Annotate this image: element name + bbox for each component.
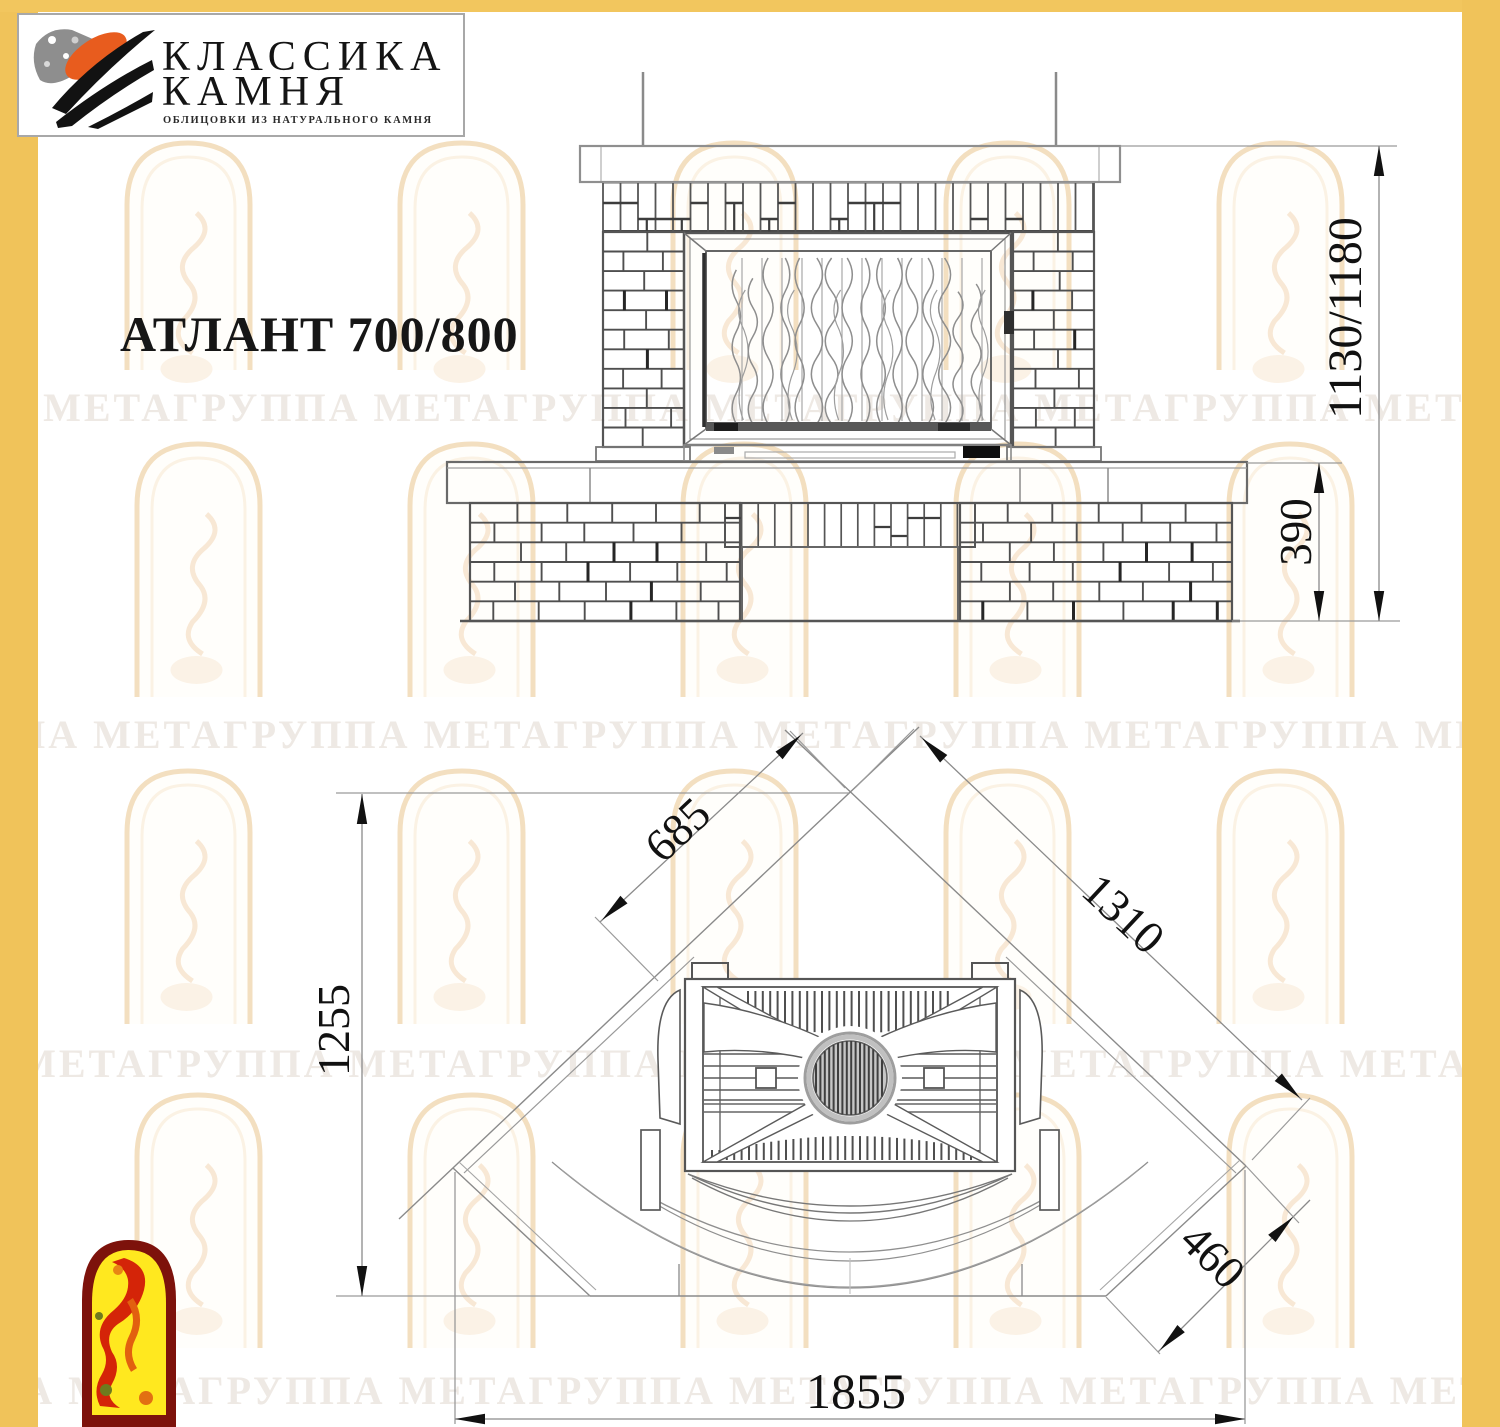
svg-text:ОБЛИЦОВКИ ИЗ НАТУРАЛЬНОГО КАМН: ОБЛИЦОВКИ ИЗ НАТУРАЛЬНОГО КАМНЯ	[163, 115, 433, 126]
svg-text:ППА МЕТАГРУППА МЕТАГРУППА МЕТА: ППА МЕТАГРУППА МЕТАГРУППА МЕТАГРУППА МЕТ…	[0, 712, 1500, 757]
svg-text:1255: 1255	[308, 984, 359, 1076]
svg-text:390: 390	[1271, 498, 1321, 566]
svg-text:1855: 1855	[806, 1363, 906, 1419]
svg-text:КАМНЯ: КАМНЯ	[162, 69, 351, 115]
svg-text:АТЛАНТ 700/800: АТЛАНТ 700/800	[120, 306, 519, 362]
svg-text:1130/1180: 1130/1180	[1319, 217, 1372, 419]
svg-text:ППА МЕТАГРУППА МЕТАГРУППА МЕТА: ППА МЕТАГРУППА МЕТАГРУППА МЕТАГРУППА МЕТ…	[0, 1368, 1500, 1413]
